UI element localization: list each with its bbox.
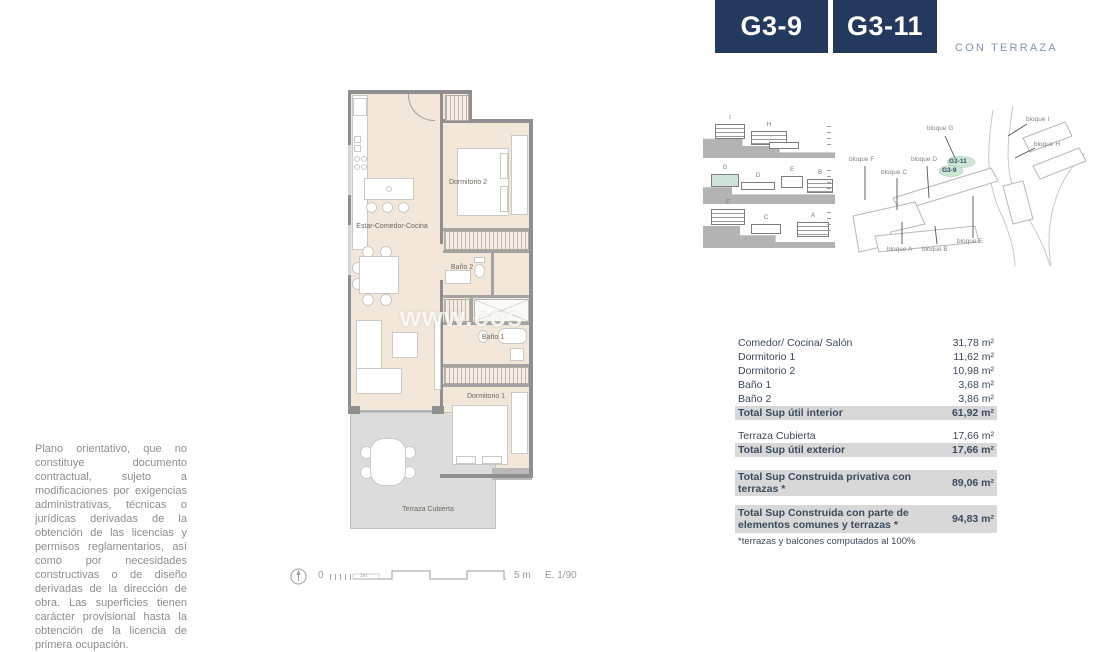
row-value: 31,78 m² [953,337,994,349]
fridge [353,98,367,116]
section-label: C [764,215,768,221]
table-gap [735,496,997,505]
site-sections: I H G D E B F C A [703,112,835,247]
watermark: www.cos [400,302,523,333]
elevation-tick [827,212,831,213]
map-unit-tag-g3-9: G3-9 [942,167,956,174]
section-building-a [797,222,829,237]
label-bath1: Baño 1 [482,334,504,341]
bath2-toilet [474,264,485,278]
sofa-chaise [356,368,402,394]
scale-zero: 0 [318,570,324,581]
wardrobe-bedroom2 [444,231,529,250]
section-building-i [715,124,745,139]
table-row: Dormitorio 2 10,98 m² [735,364,997,378]
row-value: 11,62 m² [953,351,994,363]
table-row: Terraza Cubierta 17,66 m² [735,429,997,443]
map-label-bloque-h: bloque H [1034,141,1060,148]
map-label-bloque-i: bloque I [1026,116,1049,123]
partition-6 [443,384,529,387]
scale-ruler [352,566,507,582]
closet-bedroom2 [511,135,528,215]
elevation-tick [827,126,831,127]
table-row-total-comunes: Total Sup Construida con parte de elemen… [735,505,997,533]
sliding-door-line [350,410,442,412]
label-terrace: Terraza Cubierta [402,506,454,513]
island-sink [386,186,392,192]
pillow-b2-2 [500,186,508,212]
section-row-3: F C A [703,208,835,248]
row-value: 3,68 m² [958,379,994,391]
table-row: Baño 2 3,86 m² [735,392,997,406]
elevation-tick [827,132,831,133]
dining-table [359,256,399,294]
unit-code-badge-g3-9: G3-9 [715,0,828,53]
wall-stub-left [348,406,360,414]
map-label-bloque-f: bloque F [849,156,874,163]
section-building-e [781,176,803,188]
bath2-sink [445,270,471,284]
scale-tick [350,574,351,580]
scale-ratio: E. 1/90 [545,570,577,581]
wall-stub-right [432,406,444,414]
table-row-total-exterior: Total Sup útil exterior 17,66 m² [735,443,997,457]
label-bedroom1: Dormitorio 1 [467,393,505,400]
row-value: 17,66 m² [953,430,994,442]
bath1-sink [510,348,524,361]
scale-tick [330,574,331,580]
section-building-h-base [769,142,799,149]
elevation-tick [827,230,831,231]
partition-bath2-shower [491,253,494,295]
scale-tick [335,574,336,580]
closet-bedroom1 [511,392,528,454]
row-label: Dormitorio 1 [738,351,795,363]
section-row-1: I H [703,118,835,158]
section-building-g-highlight [711,174,739,187]
map-label-bloque-e: bloque E [957,238,983,245]
dining-chair-6 [380,294,392,306]
table-gap [735,457,997,470]
elevation-tick [827,170,831,171]
row-value: 94,83 m² [952,513,994,525]
section-label: B [818,170,822,176]
elevation-tick [827,188,831,189]
partition-2 [443,250,529,253]
dining-chair-5 [362,294,374,306]
section-row-2: G D E B [703,164,835,204]
row-label: Comedor/ Cocina/ Salón [738,337,852,349]
table-gap [735,420,997,429]
elevation-tick [827,144,831,145]
section-label: A [811,213,815,219]
stool-1 [366,202,377,213]
row-value: 10,98 m² [953,365,994,377]
row-label: Baño 1 [738,379,771,391]
row-label: Baño 2 [738,393,771,405]
pillow-b1-2 [482,456,502,464]
header-subtitle: CON TERRAZA [955,42,1058,54]
unit-code-badge-g3-11: G3-11 [833,0,937,53]
pillow-b1-1 [456,456,476,464]
window-left-2 [348,225,351,275]
section-label: D [756,173,760,179]
row-value: 89,06 m² [952,477,994,489]
bath2-cistern [474,257,485,263]
stool-2 [382,202,393,213]
map-label-bloque-c: bloque C [881,169,907,176]
elevation-tick [827,176,831,177]
partition-3 [443,295,529,298]
table-row: Dormitorio 1 11,62 m² [735,350,997,364]
scale-bar: 0 1m 5 m E. 1/90 [290,566,580,590]
elevation-tick [827,138,831,139]
map-label-bloque-d: bloque D [911,156,937,163]
table-row: Comedor/ Cocina/ Salón 31,78 m² [735,336,997,350]
map-unit-tag-g3-11: G3-11 [949,158,967,165]
map-label-bloque-b: bloque B [922,246,948,253]
elevation-tick [827,182,831,183]
scale-tick [340,574,341,580]
hob-burner-1 [354,156,360,162]
map-label-bloque-g: bloque G [927,125,953,132]
label-bath2: Baño 2 [451,264,473,271]
row-label: Total Sup Construida con parte de elemen… [738,507,938,531]
wardrobe-bedroom1 [444,367,529,384]
hob-burner-2 [361,156,367,162]
wall-right [529,119,533,478]
wall-wing-bottom [440,474,529,478]
label-living: Estar-Comedor-Cocina [356,223,428,230]
row-label: Terraza Cubierta [738,430,816,442]
row-label: Total Sup útil exterior [738,444,845,456]
table-row: Baño 1 3,68 m² [735,378,997,392]
table-footnote: *terrazas y balcones computados al 100% [735,533,997,547]
disclaimer-text: Plano orientativo, que no constituye doc… [35,442,187,652]
scale-tick [345,574,346,580]
kitchen-sink-2 [354,145,361,152]
areas-table: Comedor/ Cocina/ Salón 31,78 m² Dormitor… [735,336,997,547]
section-building-f [711,209,745,225]
section-building-c [751,224,781,234]
row-value: 17,66 m² [952,444,994,456]
row-value: 3,86 m² [958,393,994,405]
row-label: Total Sup Construida privativa con terra… [738,471,944,495]
stool-3 [398,202,409,213]
hob-burner-4 [361,164,367,170]
row-label: Dormitorio 2 [738,365,795,377]
section-label: F [726,200,730,206]
section-building-d [741,182,775,190]
elevation-tick [827,224,831,225]
map-label-bloque-a: bloque A [887,246,912,253]
elevation-tick [827,218,831,219]
entry-closet [445,95,469,121]
scale-five-meters: 5 m [514,570,531,581]
label-bedroom2: Dormitorio 2 [449,179,487,186]
section-label: H [767,122,771,128]
table-row-total-interior: Total Sup útil interior 61,92 m² [735,406,997,420]
section-label: E [790,167,794,173]
table-row-total-privativa: Total Sup Construida privativa con terra… [735,470,997,496]
kitchen-sink-1 [354,136,361,143]
coffee-table [392,332,418,358]
row-value: 61,92 m² [952,407,994,419]
site-map: bloque G bloque I bloque H bloque F bloq… [845,98,1100,266]
north-arrow-icon [290,568,307,585]
row-label: Total Sup útil interior [738,407,843,419]
pillow-b2-1 [500,153,508,179]
terrace-table [370,438,406,486]
hob-burner-3 [354,164,360,170]
window-left-1 [348,145,351,195]
wall-divider-upper [440,94,443,244]
section-label: G [723,165,728,171]
section-label: I [729,115,731,121]
